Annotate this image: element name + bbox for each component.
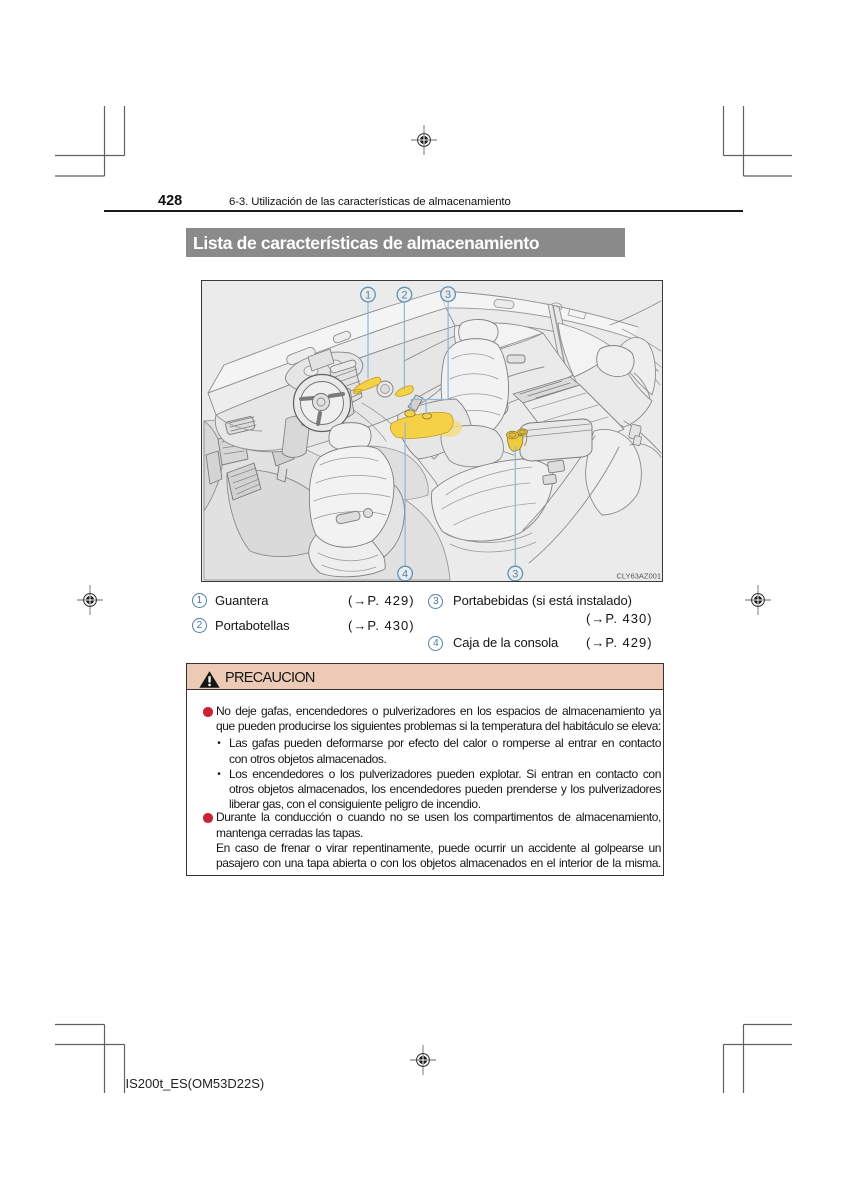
svg-text:3: 3 xyxy=(512,569,518,581)
svg-text:1: 1 xyxy=(365,290,371,302)
svg-text:2: 2 xyxy=(401,290,407,302)
svg-text:4: 4 xyxy=(402,569,408,581)
svg-text:CLY63AZ001: CLY63AZ001 xyxy=(617,572,661,581)
svg-text:3: 3 xyxy=(445,289,451,301)
